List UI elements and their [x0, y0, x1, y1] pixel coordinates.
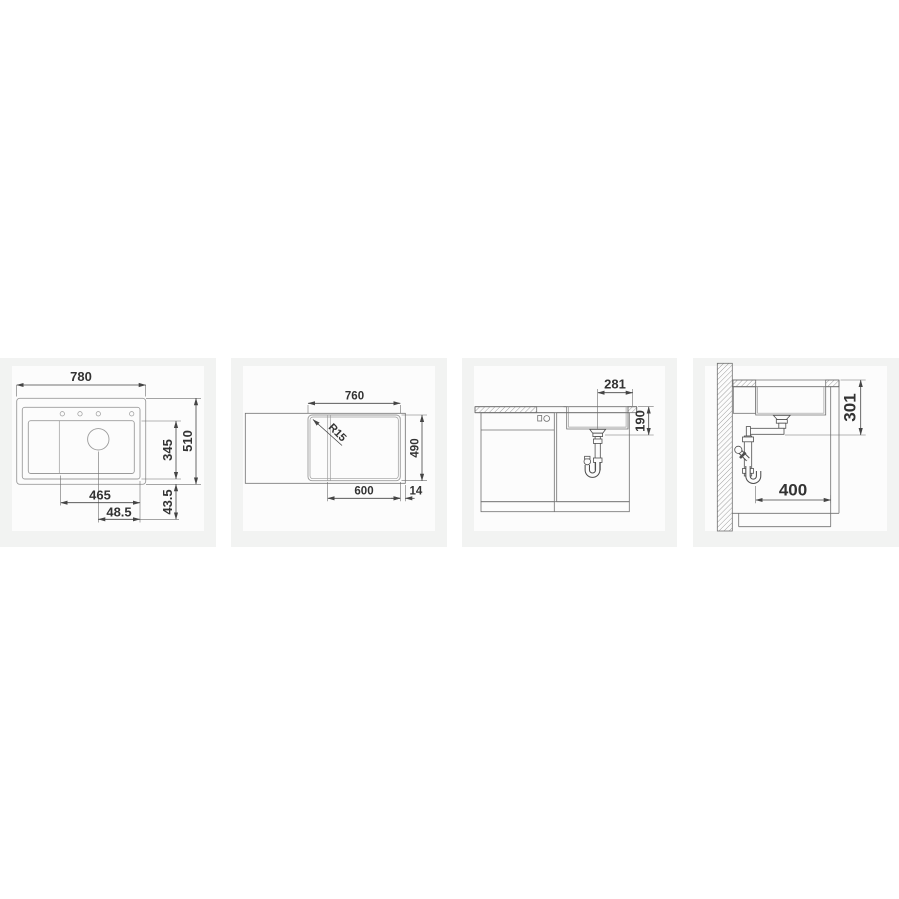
- drawing-area: [474, 366, 665, 531]
- dim-label-bowl-depth: 345: [160, 439, 175, 461]
- drain-flange: [590, 429, 606, 433]
- dim-label-overall-depth: 510: [180, 430, 195, 452]
- dim-label-drain-offset-right: 48.5: [106, 504, 131, 519]
- drawing-card-front-view[interactable]: 281 190: [462, 358, 677, 547]
- top-view-drawing: 780 465 48.5 345 510 43.5: [0, 358, 216, 547]
- drawing-card-top-view[interactable]: 780 465 48.5 345 510 43.5: [0, 358, 216, 547]
- drain-horizontal-pipe: [750, 428, 784, 434]
- dim-label-bowl-depth: 190: [633, 410, 648, 432]
- dim-label-bowl-width: 465: [89, 488, 111, 503]
- wall-section: [717, 363, 732, 531]
- dim-label-bowl-zone-width: 600: [354, 485, 373, 497]
- dim-label-cutout-depth: 490: [409, 438, 421, 457]
- drawing-area: [243, 366, 435, 531]
- dim-label-overall-width: 780: [70, 369, 92, 384]
- dim-label-outlet-height: 301: [841, 393, 860, 421]
- dim-label-drain-from-right: 281: [604, 377, 626, 392]
- drawing-card-cutout-view[interactable]: 760 490 600 14 R15: [231, 358, 447, 547]
- drawing-card-side-view[interactable]: 400 301: [693, 358, 899, 547]
- dim-label-drain-offset-bottom: 43.5: [160, 489, 175, 514]
- wall-outlet-flange: [735, 446, 742, 453]
- cutout-view-drawing: 760 490 600 14 R15: [231, 358, 447, 547]
- side-view-drawing: 400 301: [693, 358, 899, 547]
- dim-label-base-depth: 400: [779, 481, 807, 500]
- front-view-drawing: 281 190: [462, 358, 677, 547]
- page-background: { "page": { "background": "#ffffff", "ca…: [0, 0, 899, 899]
- dim-label-right-margin: 14: [410, 485, 423, 497]
- dim-label-cutout-width: 760: [345, 390, 364, 402]
